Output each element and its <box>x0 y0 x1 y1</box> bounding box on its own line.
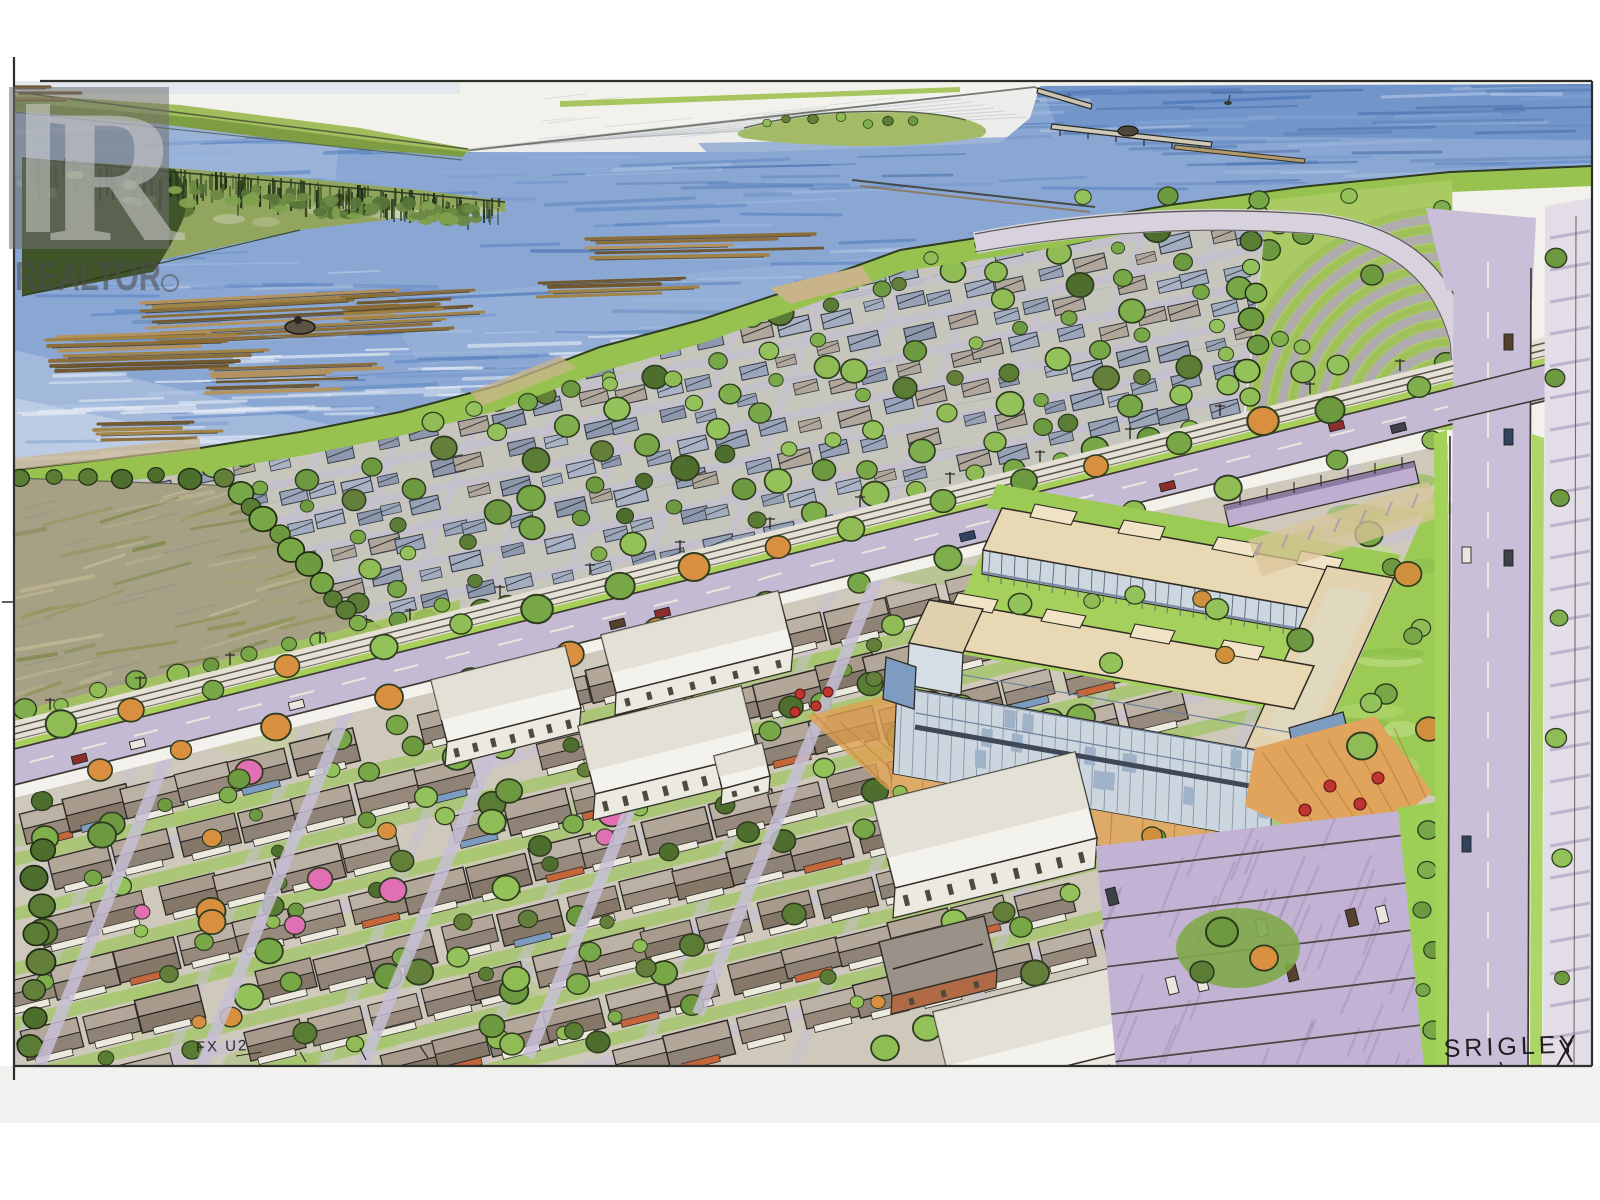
svg-text:REALTOR: REALTOR <box>15 253 161 299</box>
svg-text:R: R <box>46 72 185 282</box>
svg-text:SRIGLEY: SRIGLEY <box>1443 1030 1580 1063</box>
svg-text:FX U2: FX U2 <box>196 1037 249 1056</box>
